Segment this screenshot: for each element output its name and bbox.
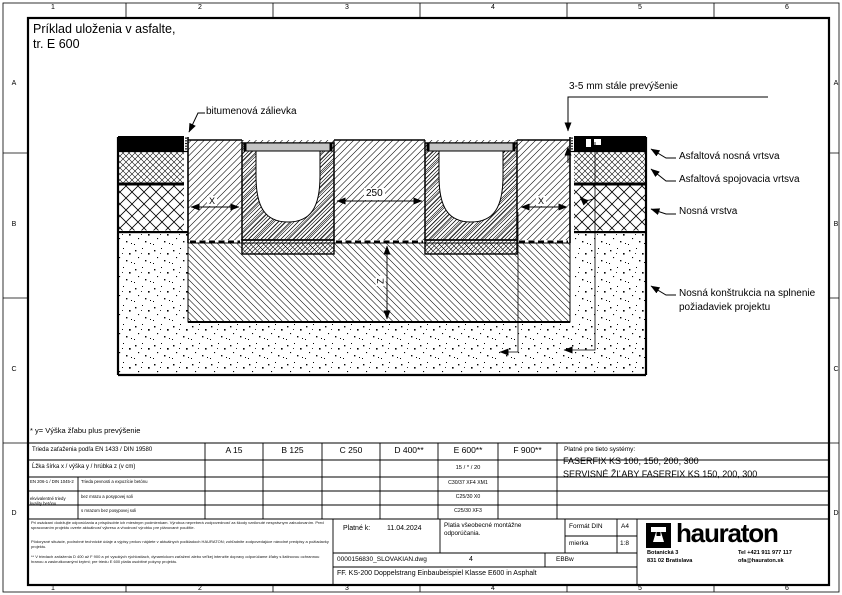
brand-email: ofa@hauraton.sk (738, 558, 784, 564)
grid-row-c-right: C (830, 366, 842, 374)
scale-value: 1:8 (620, 540, 629, 547)
callout-bitumen-joint: bitumenová zálievka (206, 106, 297, 118)
channel-2-grating (427, 143, 515, 151)
disclaimer-paragraph-3: ** V triedach zaťaženia D 400 až F 900 a… (31, 555, 330, 565)
brand-address-line1: Botanická 3 (647, 550, 678, 556)
exposure-row-3-label: s mrazom bez posypovej soli (81, 509, 136, 514)
grid-col-2: 2 (190, 4, 210, 12)
systems-line2: SERVISNÉ ŽĽABY FASERFIX KS 150, 200, 300 (563, 469, 757, 479)
systems-line1: FASERFIX KS 100, 150, 200, 300 (563, 456, 699, 466)
drawing-description: FF. KS-200 Doppelstrang Einbaubeispiel K… (337, 570, 537, 578)
grid-col-2-bottom: 2 (190, 585, 210, 593)
grid-row-a: A (8, 80, 20, 88)
channel-2-foundation (425, 240, 517, 254)
recommendation-note: Platia všeobecné montážne odporúčania. (444, 522, 524, 537)
exposure-row-2-label: bez mrazu a posypovej soli (81, 495, 133, 500)
callout-substructure: Nosná konštrukcia na splnenie požiadavie… (679, 287, 821, 315)
brand-phone: Tel +421 911 977 117 (738, 550, 792, 556)
grid-col-4: 4 (483, 4, 503, 12)
file-name: 0000156830_SLOVAKIAN.dwg (337, 556, 427, 563)
grid-col-5: 5 (630, 4, 650, 12)
grid-row-b: B (8, 221, 20, 229)
format-value: A4 (621, 523, 629, 530)
callout-elevation: 3-5 mm stále prevýšenie (569, 81, 678, 93)
callout-asphalt-base-course: Asfaltová nosná vrtsva (679, 151, 780, 163)
callout-base-course: Nosná vrstva (679, 206, 737, 218)
load-class-e600: E 600** (438, 446, 498, 456)
systems-heading: Platné pre tieto systémy: (564, 446, 635, 453)
dimension-depth-z: Z (376, 276, 386, 286)
channel-2-interior (439, 151, 503, 222)
dimension-spacing-250: 250 (364, 188, 385, 200)
concrete-norm: EN 206-1 / DIN 1045-2 (30, 479, 76, 484)
grid-row-c: C (8, 366, 20, 374)
grid-row-d: D (8, 510, 20, 518)
dim-row-label: Ĺžka šírka x / výška y / hrúbka z (v cm) (32, 464, 135, 471)
grid-col-6: 6 (777, 4, 797, 12)
channel-1-interior (256, 151, 320, 222)
grid-col-1-bottom: 1 (43, 585, 63, 593)
valid-date: 11.04.2024 (387, 525, 422, 533)
doc-code: EBBw (556, 556, 574, 563)
base-layer-left (118, 186, 184, 231)
footnote-y: * y= Výška žľabu plus prevýšenie (30, 427, 140, 436)
grid-col-6-bottom: 6 (777, 585, 797, 593)
grid-row-b-right: B (830, 221, 842, 229)
load-class-b125: B 125 (263, 446, 322, 456)
exposure-row-3-e600: C25/30 XF3 (438, 509, 498, 515)
dim-value-e600: 15 / * / 20 (438, 465, 498, 472)
channel-1-grating (244, 143, 332, 151)
disclaimer-paragraph-2: Pôdorysné situácie, podrobné technické ú… (31, 540, 330, 550)
grid-col-4-bottom: 4 (483, 585, 503, 593)
scale-label: mierka (569, 540, 589, 547)
asphalt-wearing-layer-right (574, 137, 646, 152)
callout-asphalt-binder-course: Asfaltová spojovacia vrtsva (679, 174, 800, 186)
concrete-note: ekvivalentné triedy kvality betónu (30, 496, 76, 506)
channel-1-foundation (242, 240, 334, 254)
load-class-c250: C 250 (322, 446, 380, 456)
grid-col-1: 1 (43, 4, 63, 12)
asphalt-binder-layer-left (118, 152, 184, 183)
drawing-sheet: 1 2 3 4 5 6 1 2 3 4 5 6 A B C D A B C D … (0, 0, 842, 595)
exposure-row-1-e600: C30/37 XF4 XM1 (438, 481, 498, 487)
disclaimer-paragraph-1: Pri osádzaní dodržujte odporúčania a pri… (31, 521, 330, 531)
asphalt-wearing-layer-left (118, 137, 184, 152)
page-title-line2: tr. E 600 (33, 37, 80, 51)
exposure-row-2-e600: C25/30 X0 (438, 495, 498, 501)
valid-label: Platné k: (343, 525, 370, 533)
grid-row-d-right: D (830, 510, 842, 518)
load-class-row-label: Trieda zaťaženia podľa EN 1433 / DIN 195… (32, 447, 152, 454)
grid-col-3: 3 (337, 4, 357, 12)
grid-col-5-bottom: 5 (630, 585, 650, 593)
exposure-row-1-label: Trieda pevnosti a expozície betónu (81, 480, 147, 485)
page-title-line1: Príklad uloženia v asfalte, (33, 22, 175, 36)
load-class-d400: D 400** (380, 446, 438, 456)
format-label: Formát DIN (569, 523, 603, 530)
grid-col-3-bottom: 3 (337, 585, 357, 593)
load-class-a15: A 15 (205, 446, 263, 456)
grid-row-a-right: A (830, 80, 842, 88)
sheet-number: 4 (469, 556, 473, 564)
dimension-x-right: X (536, 196, 546, 206)
load-class-f900: F 900** (498, 446, 557, 456)
hauraton-logo-wordmark: hauraton (676, 520, 778, 546)
base-layer-right (574, 186, 646, 231)
substructure-bottom (118, 322, 646, 375)
asphalt-binder-layer-right (574, 152, 646, 183)
dimension-x-left: X (207, 196, 217, 206)
brand-address-line2: 831 02 Bratislava (647, 558, 692, 564)
